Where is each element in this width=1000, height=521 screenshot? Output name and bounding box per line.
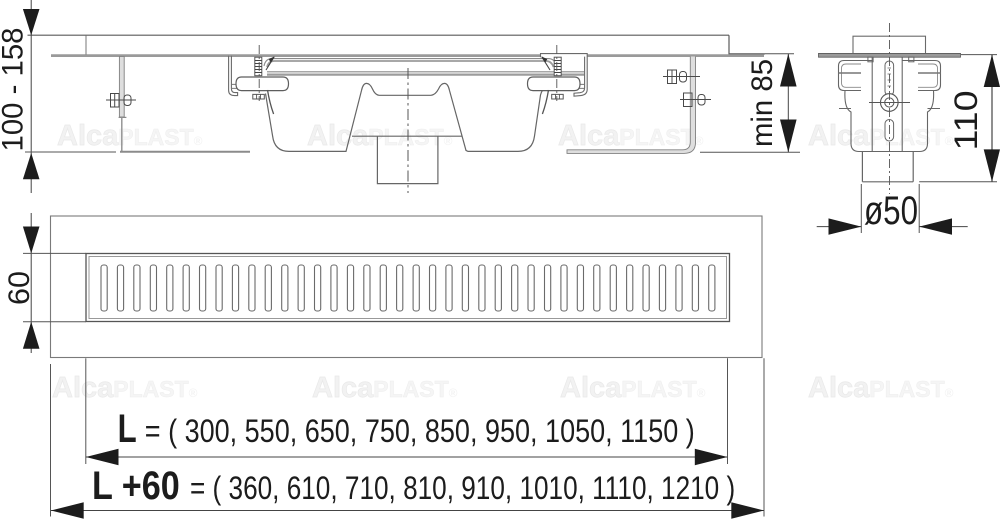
svg-text:L: L — [118, 406, 137, 451]
svg-text:AlcaPLAST®: AlcaPLAST® — [312, 372, 458, 404]
svg-text:110: 110 — [948, 91, 984, 151]
svg-text:AlcaPLAST®: AlcaPLAST® — [52, 372, 198, 404]
svg-text:ø50: ø50 — [864, 189, 918, 233]
svg-text:AlcaPLAST®: AlcaPLAST® — [57, 120, 203, 152]
svg-text:60: 60 — [3, 271, 36, 305]
svg-text:AlcaPLAST®: AlcaPLAST® — [808, 120, 954, 152]
svg-text:100 - 158: 100 - 158 — [0, 28, 30, 152]
svg-text:min 85: min 85 — [746, 59, 779, 147]
svg-text:= ( 360, 610, 710, 810, 910, 1: = ( 360, 610, 710, 810, 910, 1010, 1110,… — [190, 470, 735, 506]
svg-text:L +60: L +60 — [92, 462, 180, 507]
svg-text:AlcaPLAST®: AlcaPLAST® — [808, 372, 954, 404]
svg-text:AlcaPLAST®: AlcaPLAST® — [560, 372, 706, 404]
svg-text:AlcaPLAST®: AlcaPLAST® — [558, 120, 704, 152]
svg-text:= ( 300, 550, 650, 750, 850, 9: = ( 300, 550, 650, 750, 850, 950, 1050, … — [145, 414, 695, 450]
